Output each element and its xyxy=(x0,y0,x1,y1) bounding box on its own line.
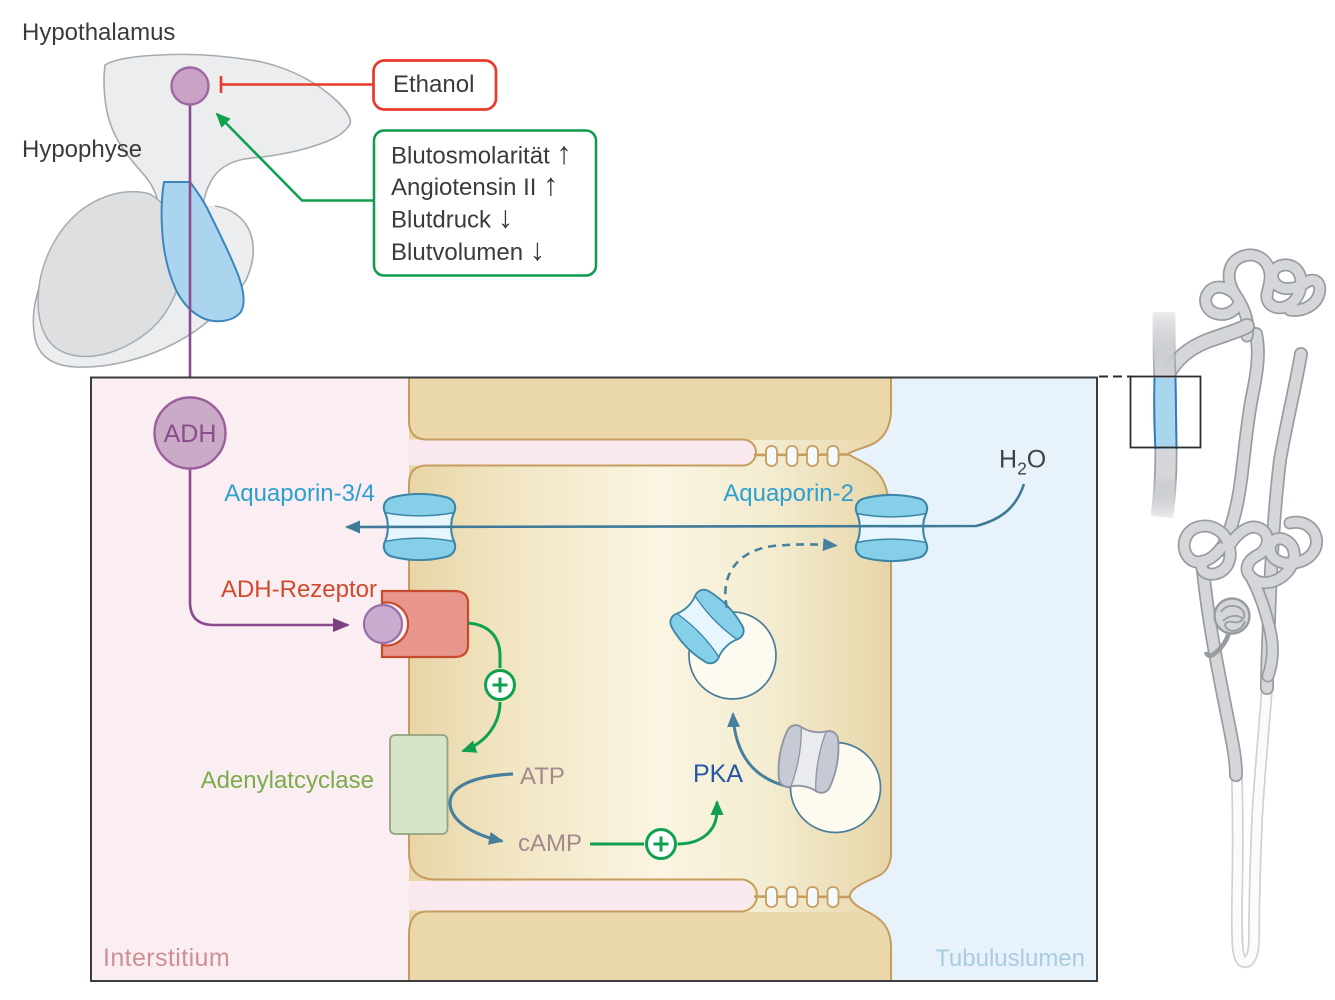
svg-text:Aquaporin-3/4: Aquaporin-3/4 xyxy=(224,480,375,507)
svg-text:cAMP: cAMP xyxy=(518,830,582,857)
svg-text:Adenylatcyclase: Adenylatcyclase xyxy=(201,767,374,794)
svg-text:Hypothalamus: Hypothalamus xyxy=(22,19,175,46)
svg-text:Interstitium: Interstitium xyxy=(103,944,230,972)
svg-text:Ethanol: Ethanol xyxy=(393,71,474,98)
svg-text:ATP: ATP xyxy=(520,763,565,790)
svg-text:Aquaporin-2: Aquaporin-2 xyxy=(723,480,854,507)
svg-text:Hypophyse: Hypophyse xyxy=(22,136,142,163)
svg-text:Tubuluslumen: Tubuluslumen xyxy=(935,945,1085,972)
svg-text:ADH-Rezeptor: ADH-Rezeptor xyxy=(221,576,377,603)
svg-text:ADH: ADH xyxy=(164,420,217,448)
svg-text:PKA: PKA xyxy=(693,760,743,788)
